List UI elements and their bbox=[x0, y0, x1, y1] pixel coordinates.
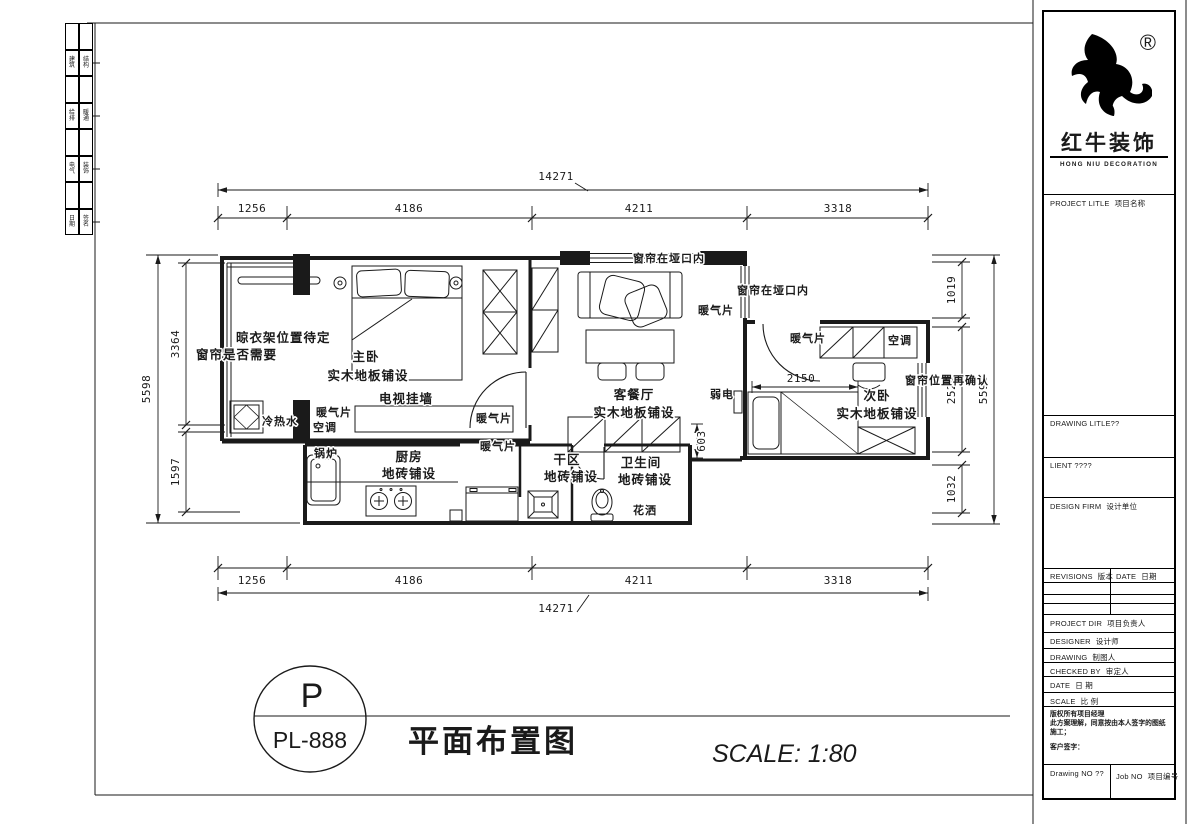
dim-left-1: 3364 bbox=[169, 330, 182, 359]
tb-job-no-en: Job NO bbox=[1116, 772, 1143, 781]
brand-name-en: HONG NIU DECORATION bbox=[1044, 161, 1174, 168]
label-dry-floor: 地砖铺设 bbox=[544, 469, 598, 484]
dim-top-2: 4186 bbox=[395, 202, 424, 215]
label-radiator-hall: 暖气片 bbox=[476, 411, 512, 425]
title-block: ® 红牛装饰 HONG NIU DECORATION PROJECT LITLE… bbox=[1042, 10, 1176, 800]
label-radiator-master: 暖气片 bbox=[316, 405, 352, 419]
floor-drain bbox=[528, 491, 558, 518]
strip-label: 暖通 bbox=[79, 103, 93, 130]
strip-label: 日期 bbox=[65, 209, 79, 236]
label-curtain-reconfirm: 窗帘位置再确认 bbox=[905, 373, 989, 387]
label-kitchen: 厨房 bbox=[395, 449, 422, 464]
tb-client: LIENT ???? bbox=[1050, 461, 1092, 470]
weak-current-box bbox=[734, 391, 742, 413]
brand-rule bbox=[1050, 156, 1168, 158]
dim-bot-4: 3318 bbox=[824, 574, 853, 587]
toilet bbox=[591, 489, 613, 521]
dining-table bbox=[586, 330, 674, 380]
strip-label: 电气 bbox=[65, 156, 79, 183]
tb-scale-en: SCALE bbox=[1050, 697, 1076, 706]
dim-right-3: 1032 bbox=[945, 475, 958, 504]
strip-cell bbox=[65, 76, 79, 103]
label-kitchen-floor: 地砖铺设 bbox=[382, 466, 436, 481]
washing-machine bbox=[466, 487, 518, 521]
label-bedroom2-floor: 实木地板铺设 bbox=[836, 406, 917, 421]
tb-date-cn: 日 期 bbox=[1075, 680, 1093, 691]
strip-label: 给排 bbox=[65, 103, 79, 130]
tb-project-title-en: PROJECT LITLE bbox=[1050, 199, 1110, 208]
label-boiler: 锅炉 bbox=[314, 446, 338, 460]
label-bath-floor: 地砖铺设 bbox=[618, 472, 672, 487]
tb-revdate-cn: 日期 bbox=[1141, 571, 1156, 582]
label-living-dining: 客餐厅 bbox=[613, 387, 655, 402]
label-radiator-dry: 暖气片 bbox=[480, 439, 516, 453]
brand-name-cn: 红牛装饰 bbox=[1044, 127, 1174, 157]
label-curtain-opening-2: 窗帘在垭口内 bbox=[737, 283, 809, 297]
tb-project-title-cn: 项目名称 bbox=[1115, 198, 1146, 209]
dim-top-overall: 14271 bbox=[538, 170, 574, 183]
label-radiator-corridor: 暖气片 bbox=[698, 303, 734, 317]
drawing-sheet: 14271 1256 4186 4211 3318 1256 4186 4211… bbox=[0, 0, 1200, 824]
tb-designer-en: DESIGNER bbox=[1050, 637, 1091, 646]
label-shower: 花洒 bbox=[633, 503, 657, 517]
ceiling-lamp-icon bbox=[334, 277, 462, 289]
dim-bath-depth: 603 bbox=[695, 430, 708, 451]
edge-signature-strip: 建筑结构 给排暖通 电气装饰 日期签名 bbox=[65, 23, 93, 235]
label-weak-current: 弱电 bbox=[710, 387, 734, 401]
tb-design-firm-cn: 设计单位 bbox=[1106, 501, 1137, 512]
plan-labels: 晾衣架位置待定 窗帘是否需要 主卧 实木地板铺设 电视挂墙 暖气片 空调 冷热水… bbox=[196, 251, 989, 517]
tb-drawing-title: DRAWING LITLE?? bbox=[1050, 419, 1119, 428]
label-curtain-opening-1: 窗帘在垭口内 bbox=[633, 251, 705, 265]
strip-label: 装饰 bbox=[79, 156, 93, 183]
label-radiator-bedroom2: 暖气片 bbox=[790, 331, 826, 345]
label-dry-area: 干区 bbox=[553, 453, 580, 467]
drawing-code-letter: P bbox=[301, 677, 324, 715]
label-living-floor: 实木地板铺设 bbox=[593, 405, 674, 420]
window-sofa bbox=[578, 272, 682, 329]
strip-cell bbox=[65, 129, 79, 156]
dim-bot-3: 4211 bbox=[625, 574, 654, 587]
kitchen-sink bbox=[307, 455, 340, 505]
tb-designer-cn: 设计师 bbox=[1096, 636, 1119, 647]
strip-cell bbox=[79, 129, 93, 156]
dim-bottom-overall: 14271 bbox=[538, 602, 574, 615]
drawing-code: PL-888 bbox=[273, 727, 347, 753]
strip-cell bbox=[79, 182, 93, 209]
strip-label: 建筑 bbox=[65, 50, 79, 77]
tb-project-dir-cn: 项目负责人 bbox=[1107, 618, 1146, 629]
label-ac-bedroom2: 空调 bbox=[888, 333, 912, 347]
strip-cell bbox=[79, 76, 93, 103]
tb-drawing-no: Drawing NO ?? bbox=[1050, 769, 1104, 778]
label-bathroom: 卫生间 bbox=[621, 455, 662, 470]
tb-job-no-cn: 项目编号 bbox=[1148, 771, 1179, 782]
label-hot-cold-water: 冷热水 bbox=[262, 414, 298, 428]
tb-date-en: DATE bbox=[1050, 681, 1070, 690]
hall-cabinet bbox=[532, 268, 558, 352]
gas-stove bbox=[366, 486, 416, 516]
tb-revisions-en: REVISIONS bbox=[1050, 572, 1093, 581]
strip-label: 签名 bbox=[79, 209, 93, 236]
tb-drawing-en: DRAWING bbox=[1050, 653, 1087, 662]
dim-top-4: 3318 bbox=[824, 202, 853, 215]
tb-checked-en: CHECKED BY bbox=[1050, 667, 1101, 676]
dim-top-1: 1256 bbox=[238, 202, 267, 215]
floor-plan-canvas: 14271 1256 4186 4211 3318 1256 4186 4211… bbox=[0, 0, 1200, 824]
dim-bot-1: 1256 bbox=[238, 574, 267, 587]
dim-right-1: 1019 bbox=[945, 276, 958, 305]
label-ac-master: 空调 bbox=[313, 420, 337, 434]
label-master-floor: 实木地板铺设 bbox=[327, 368, 408, 383]
tb-design-firm-en: DESIGN FIRM bbox=[1050, 502, 1101, 511]
strip-cell bbox=[65, 182, 79, 209]
dim-top-3: 4211 bbox=[625, 202, 654, 215]
label-hanger-tbd: 晾衣架位置待定 bbox=[236, 330, 331, 345]
tb-revdate-en: DATE bbox=[1116, 572, 1136, 581]
master-wardrobe bbox=[483, 270, 517, 354]
label-master-bedroom: 主卧 bbox=[352, 349, 379, 364]
water-heater bbox=[230, 401, 263, 433]
label-second-bedroom: 次卧 bbox=[863, 388, 890, 403]
dim-left-overall: 5598 bbox=[140, 375, 153, 404]
tb-project-dir-en: PROJECT DIR bbox=[1050, 619, 1102, 628]
tb-note3: 客户签字： bbox=[1050, 743, 1170, 752]
bedroom2-wardrobe bbox=[858, 427, 915, 454]
living-cabinet bbox=[568, 417, 680, 452]
drawing-scale: SCALE: 1:80 bbox=[712, 740, 857, 768]
dim-bot-2: 4186 bbox=[395, 574, 424, 587]
label-tv-wall: 电视挂墙 bbox=[379, 391, 433, 406]
strip-label: 结构 bbox=[79, 50, 93, 77]
label-curtain-needed: 窗帘是否需要 bbox=[196, 347, 277, 362]
strip-cell bbox=[79, 23, 93, 50]
tb-notes: 版权所有项目经理 此方案理解，同意按由本人签字的图纸施工； 客户签字： bbox=[1050, 710, 1170, 752]
tb-note1: 版权所有项目经理 bbox=[1050, 710, 1170, 719]
bed2 bbox=[748, 392, 858, 454]
strip-cell bbox=[65, 23, 79, 50]
drawing-title: 平面布置图 bbox=[408, 724, 578, 759]
tb-note2: 此方案理解，同意按由本人签字的图纸施工； bbox=[1050, 719, 1170, 737]
logo-bull-icon bbox=[1062, 30, 1152, 120]
title-bar: P PL-888 平面布置图 SCALE: 1:80 bbox=[254, 666, 1010, 772]
dim-left-2: 1597 bbox=[169, 458, 182, 487]
